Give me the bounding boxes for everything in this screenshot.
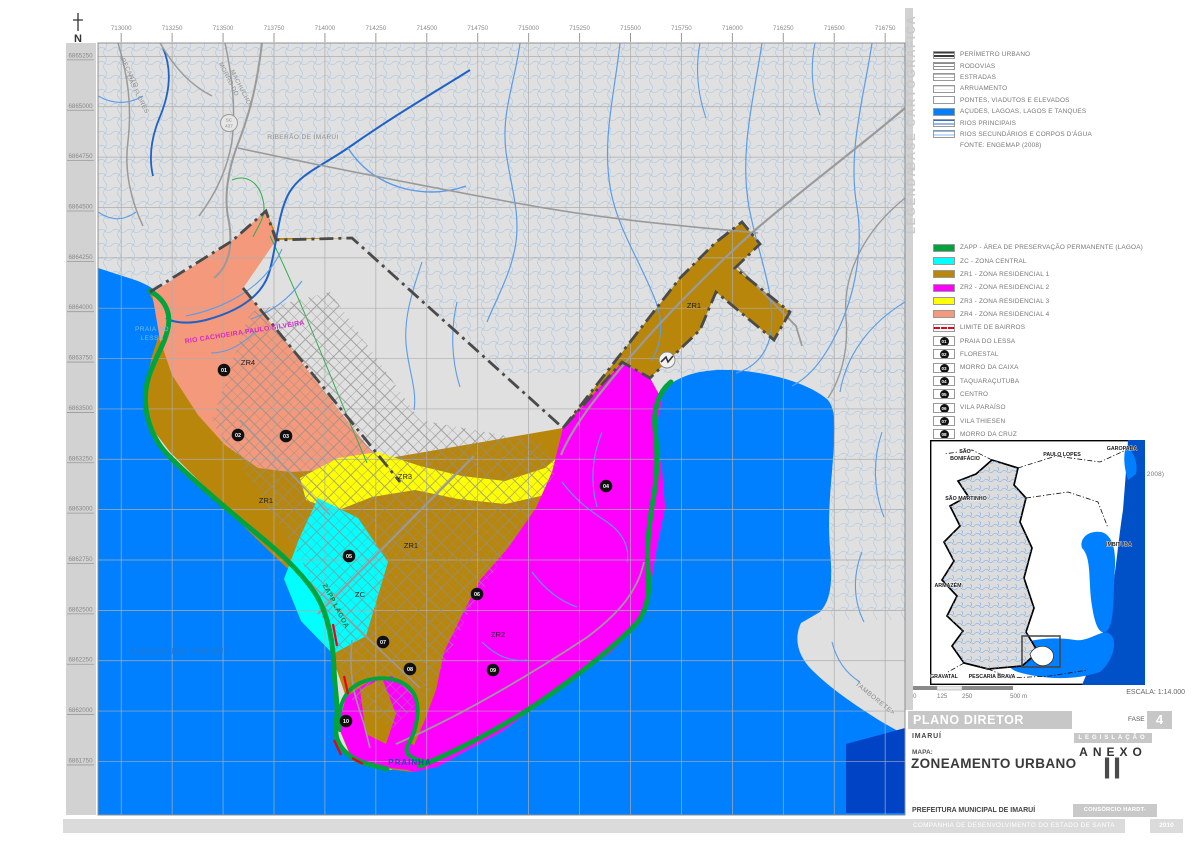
- svg-text:437: 437: [225, 124, 233, 129]
- inset-place-label: ARMAZÉM: [934, 581, 962, 589]
- map-marker: 08: [404, 663, 417, 676]
- place-label: RIBERÃO DE IMARUI: [267, 132, 338, 141]
- legend-item: 01PRAIA DO LESSA: [933, 334, 1195, 347]
- legend-item: 07VILA THIESEN: [933, 414, 1195, 427]
- legend-swatch-marker: 07: [933, 416, 955, 426]
- legend-item-label: ESTRADAS: [960, 74, 996, 81]
- legend-item: ZAPP - ÁREA DE PRESERVAÇÃO PERMANENTE (L…: [933, 241, 1195, 254]
- year-badge: 2010: [1150, 819, 1183, 833]
- map-title: ZONEAMENTO URBANO: [911, 756, 1077, 771]
- legend-item-label: FONTE: ENGEMAP (2008): [960, 142, 1042, 149]
- legend-item: 03MORRO DA CAIXA: [933, 361, 1195, 374]
- legend-swatch-fill: [933, 297, 955, 305]
- inset-place-label: SÃO MARTINHO: [945, 495, 987, 502]
- coord-label-top: 715500: [620, 25, 641, 32]
- inset-place-label: GAROPABA: [1107, 446, 1138, 452]
- legend-swatch-marker: 01: [933, 336, 955, 346]
- coord-label-top: 713500: [213, 25, 234, 32]
- legend-item-label: MORRO DA CRUZ: [960, 431, 1017, 438]
- legend-item: RIOS SECUNDÁRIOS E CORPOS D'ÁGUA: [933, 129, 1195, 140]
- legend-marker-number: 03: [940, 364, 949, 373]
- legend-item: PERÍMETRO URBANO: [933, 49, 1195, 60]
- map-marker: 06: [471, 588, 484, 601]
- svg-text:10: 10: [343, 719, 349, 725]
- legend-marker-number: 01: [940, 337, 949, 346]
- legend-swatch-none: [933, 142, 955, 150]
- legend-item-label: CENTRO: [960, 391, 988, 398]
- zone-label: ZR1: [404, 541, 418, 550]
- legend-item: ZR3 - ZONA RESIDENCIAL 3: [933, 294, 1195, 307]
- coord-label-top: 713750: [264, 25, 285, 32]
- legend-swatch-marker: 05: [933, 389, 955, 399]
- legend-item: PONTES, VIADUTOS E ELEVADOS: [933, 95, 1195, 106]
- plan-title: PLANO DIRETOR MUNICIPAL: [908, 711, 1072, 729]
- scale-tick: 500 m: [1010, 693, 1027, 700]
- map-marker: 04: [600, 480, 613, 493]
- legend-item-label: PONTES, VIADUTOS E ELEVADOS: [960, 97, 1070, 104]
- svg-text:06: 06: [474, 592, 480, 598]
- legend-item: 04TAQUARAÇUTUBA: [933, 374, 1195, 387]
- companhia-credit: COMPANHIA DE DESENVOLVIMENTO DO ESTADO D…: [913, 819, 1125, 847]
- legislacao-band: LEGISLAÇÃO: [1074, 733, 1152, 743]
- legend-swatch-dashred: [933, 324, 955, 332]
- coord-label-top: 714250: [366, 25, 387, 32]
- place-label: PRAINHA: [388, 758, 431, 767]
- legend-swatch-fill: [933, 257, 955, 265]
- legend-marker-number: 08: [940, 430, 949, 439]
- svg-text:08: 08: [407, 667, 413, 673]
- scale-tick-labels: 0125250500 m: [913, 693, 1093, 703]
- map-sheet: SC 437 PRAIA DOLESSARIO CACHOEIRA PAULO …: [0, 0, 1200, 848]
- scale-bar: [913, 686, 1023, 692]
- coord-label-top: 714000: [315, 25, 336, 32]
- coord-label-left: 6864250: [68, 254, 93, 261]
- legend-item-label: LIMITE DE BAIRROS: [960, 324, 1025, 331]
- legend-swatch-fill: [933, 108, 955, 116]
- inset-place-label: SÃO: [959, 448, 970, 455]
- map-marker: 03: [280, 430, 293, 443]
- map-marker: 10: [340, 715, 353, 728]
- coord-label-top: 713000: [111, 25, 132, 32]
- zone-label: ZR4: [241, 358, 255, 367]
- legend-item: ZR1 - ZONA RESIDENCIAL 1: [933, 268, 1195, 281]
- place-label: LESSA: [141, 335, 164, 342]
- coord-label-top: 716500: [824, 25, 845, 32]
- svg-text:09: 09: [490, 668, 496, 674]
- coord-label-left: 6865250: [68, 52, 93, 59]
- coord-label-left: 6861750: [68, 757, 93, 764]
- bridge-icon: [659, 352, 675, 368]
- place-label: PRAIA DO: [135, 326, 169, 333]
- legend-item-label: RIOS SECUNDÁRIOS E CORPOS D'ÁGUA: [960, 131, 1092, 138]
- coord-label-left: 6862750: [68, 556, 93, 563]
- footer-strip: COMPANHIA DE DESENVOLVIMENTO DO ESTADO D…: [63, 819, 1125, 833]
- legend-swatch-arruamento: [933, 85, 955, 93]
- inset-location-map: SÃOBONIFÁCIOPAULO LOPESGAROPABASÃO MARTI…: [930, 440, 1145, 685]
- coord-label-top: 716000: [722, 25, 743, 32]
- legend-item: ZR2 - ZONA RESIDENCIAL 2: [933, 281, 1195, 294]
- legend-item-label: ZR3 - ZONA RESIDENCIAL 3: [960, 298, 1049, 305]
- inset-place-label: IMBITUBA: [1106, 542, 1132, 548]
- legend-item: 02FLORESTAL: [933, 348, 1195, 361]
- legend-swatch-perimetro: [933, 51, 955, 59]
- legend-swatch-rios1: [933, 119, 955, 127]
- legend-item-label: VILA THIESEN: [960, 418, 1005, 425]
- coord-label-top: 715000: [518, 25, 539, 32]
- legend-item-label: ZR4 - ZONA RESIDENCIAL 4: [960, 311, 1049, 318]
- coord-label-top: 714500: [416, 25, 437, 32]
- legend-swatch-marker: 06: [933, 403, 955, 413]
- legend-item-label: ZR2 - ZONA RESIDENCIAL 2: [960, 284, 1049, 291]
- legend-item: RIOS PRINCIPAIS: [933, 117, 1195, 128]
- coord-label-left: 6863750: [68, 355, 93, 362]
- coord-label-left: 6862250: [68, 657, 93, 664]
- anexo-number: II: [1074, 752, 1152, 787]
- legend-item-label: VILA PARAÍSO: [960, 404, 1006, 411]
- legend-marker-number: 04: [940, 377, 949, 386]
- legend-marker-number: 06: [940, 404, 949, 413]
- map-marker: 01: [218, 364, 231, 377]
- legend-item-label: RIOS PRINCIPAIS: [960, 120, 1016, 127]
- coord-label-top: 716250: [773, 25, 794, 32]
- svg-text:04: 04: [603, 484, 609, 490]
- inset-place-label: PAULO LOPES: [1043, 452, 1081, 458]
- scale-tick: 125: [937, 693, 947, 700]
- map-marker: 02: [232, 429, 245, 442]
- scale-ratio: ESCALA: 1:14.000: [1085, 689, 1185, 696]
- consorcio-credit: CONSÓRCIO HARDT-ENGEMIN: [1073, 804, 1157, 817]
- legend-swatch-marker: 02: [933, 349, 955, 359]
- legend-item: ZR4 - ZONA RESIDENCIAL 4: [933, 308, 1195, 321]
- legend-swatch-fill: [933, 310, 955, 318]
- north-arrow: N: [73, 13, 83, 45]
- legend-swatch-fill: [933, 270, 955, 278]
- coord-label-left: 6864750: [68, 153, 93, 160]
- legend-item-label: AÇUDES, LAGOAS, LAGOS E TANQUES: [960, 108, 1086, 115]
- legend-swatch-rodovias: [933, 62, 955, 70]
- inset-place-label: PESCARIA BRAVA: [969, 674, 1016, 680]
- legend-swatch-ponte: [933, 96, 955, 104]
- inset-place-label: BONIFÁCIO: [950, 455, 980, 462]
- legend-marker-number: 02: [940, 350, 949, 359]
- zone-label: ZR3: [398, 472, 412, 481]
- coord-label-top: 715250: [569, 25, 590, 32]
- scale-tick: 250: [962, 693, 972, 700]
- panel-label-legenda: LEGENDA: [906, 174, 924, 234]
- legend-item-label: PRAIA DO LESSA: [960, 338, 1015, 345]
- inset-place-label: GRAVATAL: [930, 674, 959, 680]
- legend-item: ZC - ZONA CENTRAL: [933, 254, 1195, 267]
- panel-label-base-cartografica: BASE CARTOGRÁFICA: [906, 38, 924, 170]
- svg-text:N: N: [74, 33, 82, 45]
- coord-label-left: 6862000: [68, 707, 93, 714]
- coord-label-left: 6865000: [68, 103, 93, 110]
- coord-label-left: 6863000: [68, 506, 93, 513]
- map-marker: 07: [377, 636, 390, 649]
- coord-label-left: 6863500: [68, 405, 93, 412]
- legend-item-label: ZAPP - ÁREA DE PRESERVAÇÃO PERMANENTE (L…: [960, 244, 1143, 251]
- map-marker: 05: [343, 550, 356, 563]
- zone-label: ZC: [355, 590, 366, 599]
- svg-text:03: 03: [283, 434, 289, 440]
- legend-item-label: TAQUARAÇUTUBA: [960, 378, 1019, 385]
- legend-item: LIMITE DE BAIRROS: [933, 321, 1195, 334]
- svg-text:05: 05: [346, 554, 352, 560]
- legend-item: 06VILA PARAÍSO: [933, 401, 1195, 414]
- svg-text:01: 01: [221, 368, 227, 374]
- legend-item-label: RODOVIAS: [960, 63, 995, 70]
- legend-item: 05CENTRO: [933, 388, 1195, 401]
- legend-swatch-marker: 03: [933, 363, 955, 373]
- scale-tick: 0: [913, 693, 916, 700]
- legend-swatch-marker: 08: [933, 429, 955, 439]
- mapa-label: MAPA:: [912, 749, 933, 756]
- svg-text:07: 07: [380, 640, 386, 646]
- coord-label-top: 715750: [671, 25, 692, 32]
- legend-swatch-fill: [933, 244, 955, 252]
- coord-label-left: 6862500: [68, 606, 93, 613]
- legend-swatch-fill: [933, 284, 955, 292]
- fase-label: FASE: [1128, 716, 1145, 723]
- legend-item-label: ARRUAMENTO: [960, 85, 1007, 92]
- place-label: LAGOA DO IMARUÍ: [131, 647, 228, 656]
- svg-text:02: 02: [235, 433, 241, 439]
- stream-texture-east: [820, 370, 905, 620]
- legend-item: AÇUDES, LAGOAS, LAGOS E TANQUES: [933, 106, 1195, 117]
- legend-item-label: ZR1 - ZONA RESIDENCIAL 1: [960, 271, 1049, 278]
- map-marker: 09: [487, 664, 500, 677]
- zone-label: ZR1: [687, 301, 701, 310]
- road-shield-sc437: SC 437: [221, 115, 238, 132]
- legend-base-cartografica: PERÍMETRO URBANORODOVIASESTRADASARRUAMEN…: [933, 49, 1195, 152]
- coord-label-top: 716750: [875, 25, 896, 32]
- legend-item-label: ZC - ZONA CENTRAL: [960, 258, 1027, 265]
- coord-label-left: 6864500: [68, 203, 93, 210]
- legend-marker-number: 07: [940, 417, 949, 426]
- legend-swatch-estradas: [933, 73, 955, 81]
- municipality-name: IMARUÍ: [912, 733, 942, 740]
- legend-item: RODOVIAS: [933, 60, 1195, 71]
- legend-item-label: FLORESTAL: [960, 351, 999, 358]
- legend-marker-number: 05: [940, 390, 949, 399]
- coord-label-top: 713250: [162, 25, 183, 32]
- legend-item-label: MORRO DA CAIXA: [960, 364, 1019, 371]
- legend-item: FONTE: ENGEMAP (2008): [933, 140, 1195, 151]
- zone-label: ZR2: [491, 630, 505, 639]
- coord-label-left: 6863250: [68, 455, 93, 462]
- legend-item: ARRUAMENTO: [933, 83, 1195, 94]
- legend-swatch-marker: 04: [933, 376, 955, 386]
- coord-label-top: 714750: [467, 25, 488, 32]
- prefeitura-credit: PREFEITURA MUNICIPAL DE IMARUÍ: [912, 807, 1035, 814]
- legend-swatch-rios2: [933, 130, 955, 138]
- legend-item-label: PERÍMETRO URBANO: [960, 51, 1030, 58]
- svg-text:SC: SC: [226, 118, 233, 123]
- zone-label: ZR1: [259, 496, 273, 505]
- fase-value: 4: [1147, 711, 1172, 729]
- coord-label-left: 6864000: [68, 304, 93, 311]
- legend-item: ESTRADAS: [933, 72, 1195, 83]
